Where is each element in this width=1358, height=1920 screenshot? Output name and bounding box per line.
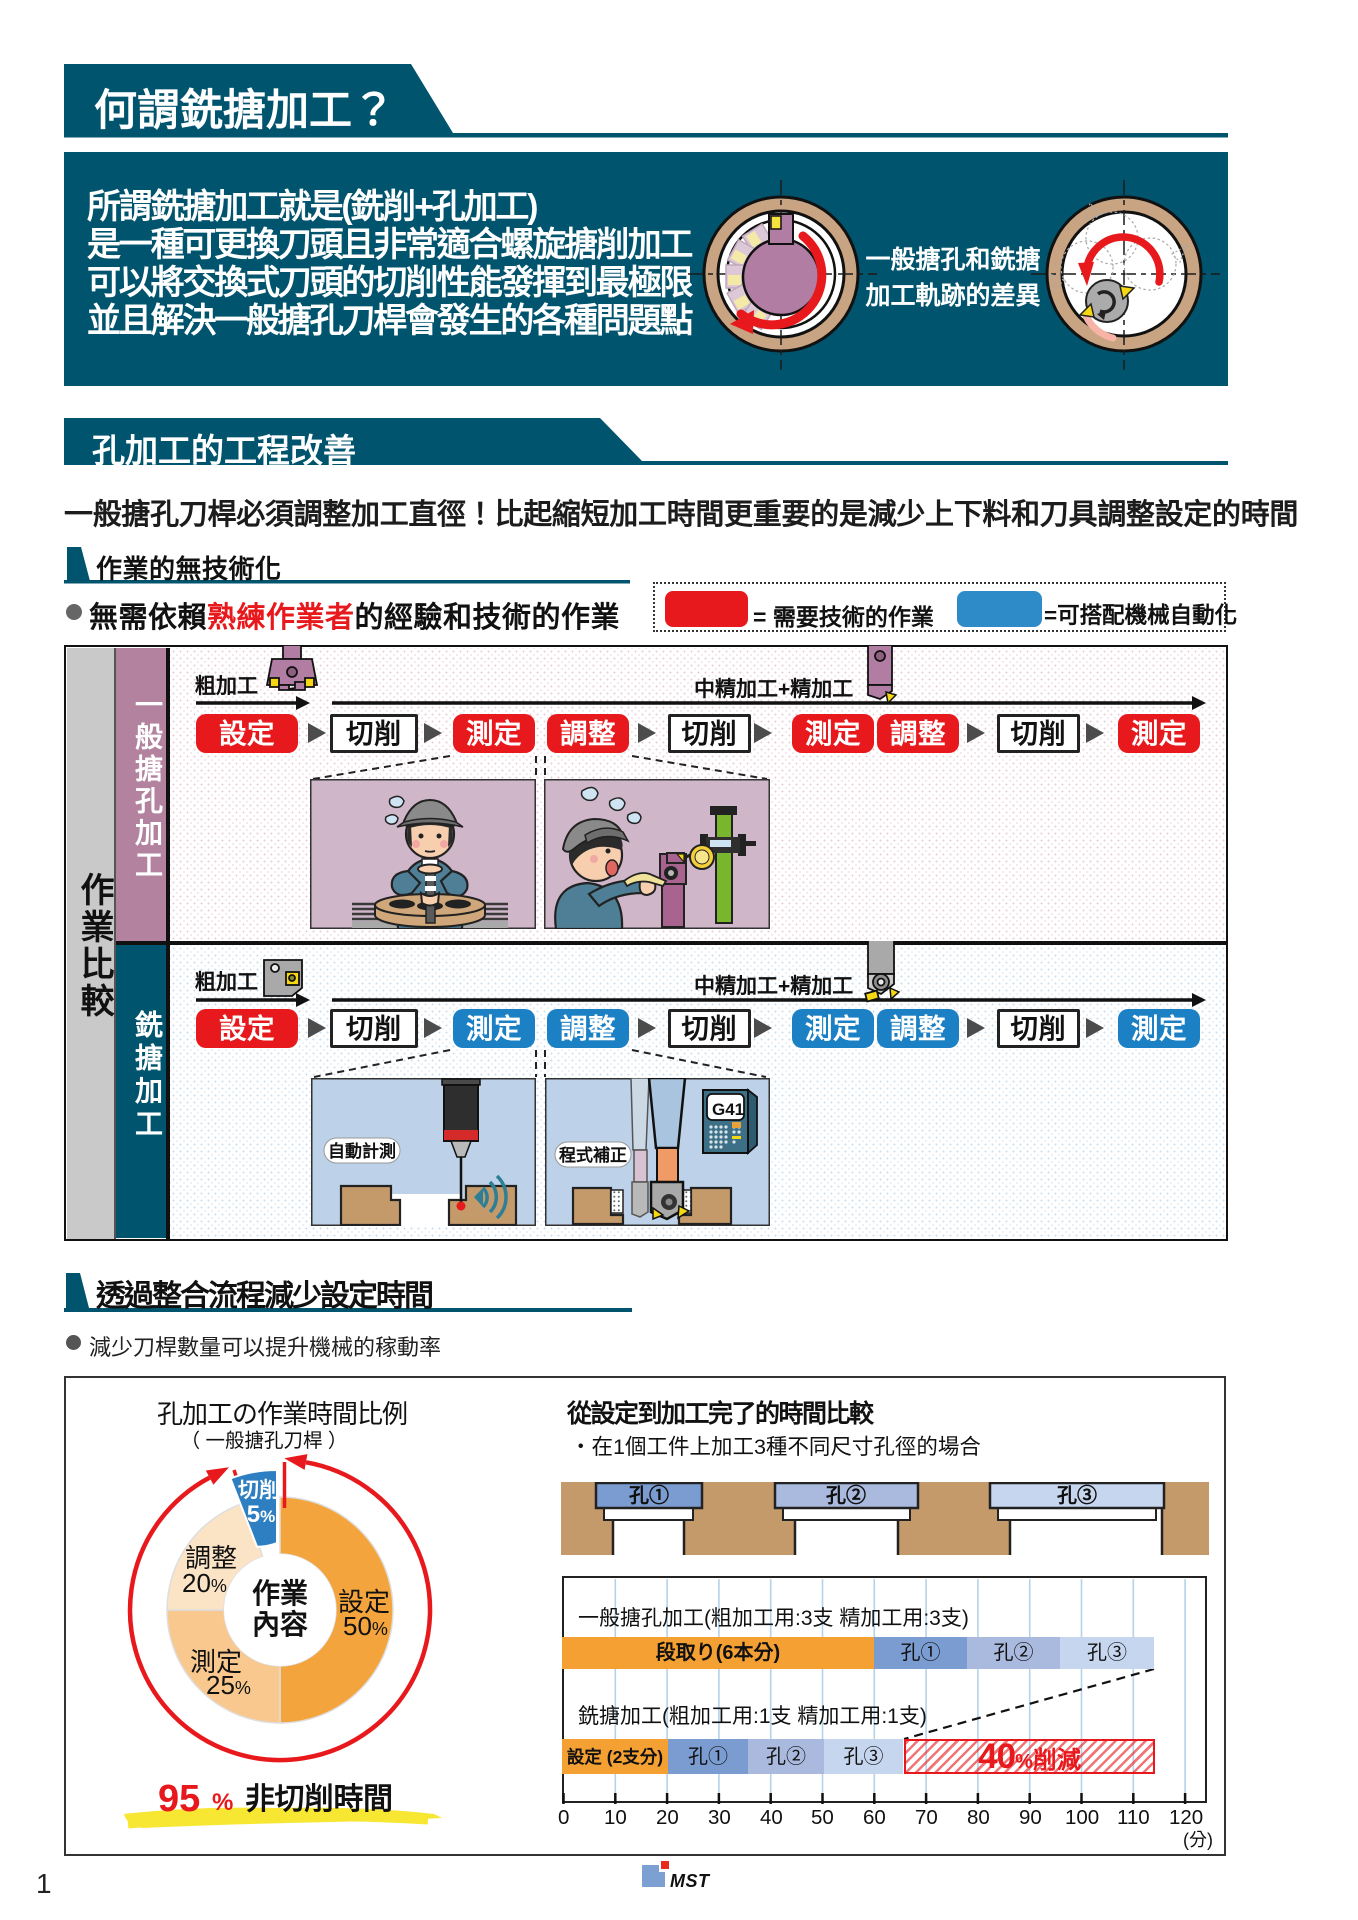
svg-text:MST: MST xyxy=(670,1871,711,1891)
svg-text:一般搪孔和銑搪: 一般搪孔和銑搪 xyxy=(865,245,1040,274)
svg-text:加工軌跡的差異: 加工軌跡的差異 xyxy=(864,281,1040,310)
svg-text:自動計測: 自動計測 xyxy=(328,1141,396,1161)
svg-text:G41: G41 xyxy=(712,1100,744,1119)
svg-text:程式補正: 程式補正 xyxy=(559,1145,627,1165)
svg-text:孔①: 孔① xyxy=(629,1484,669,1507)
svg-text:孔③: 孔③ xyxy=(1057,1484,1097,1507)
svg-text:孔②: 孔② xyxy=(826,1484,866,1507)
